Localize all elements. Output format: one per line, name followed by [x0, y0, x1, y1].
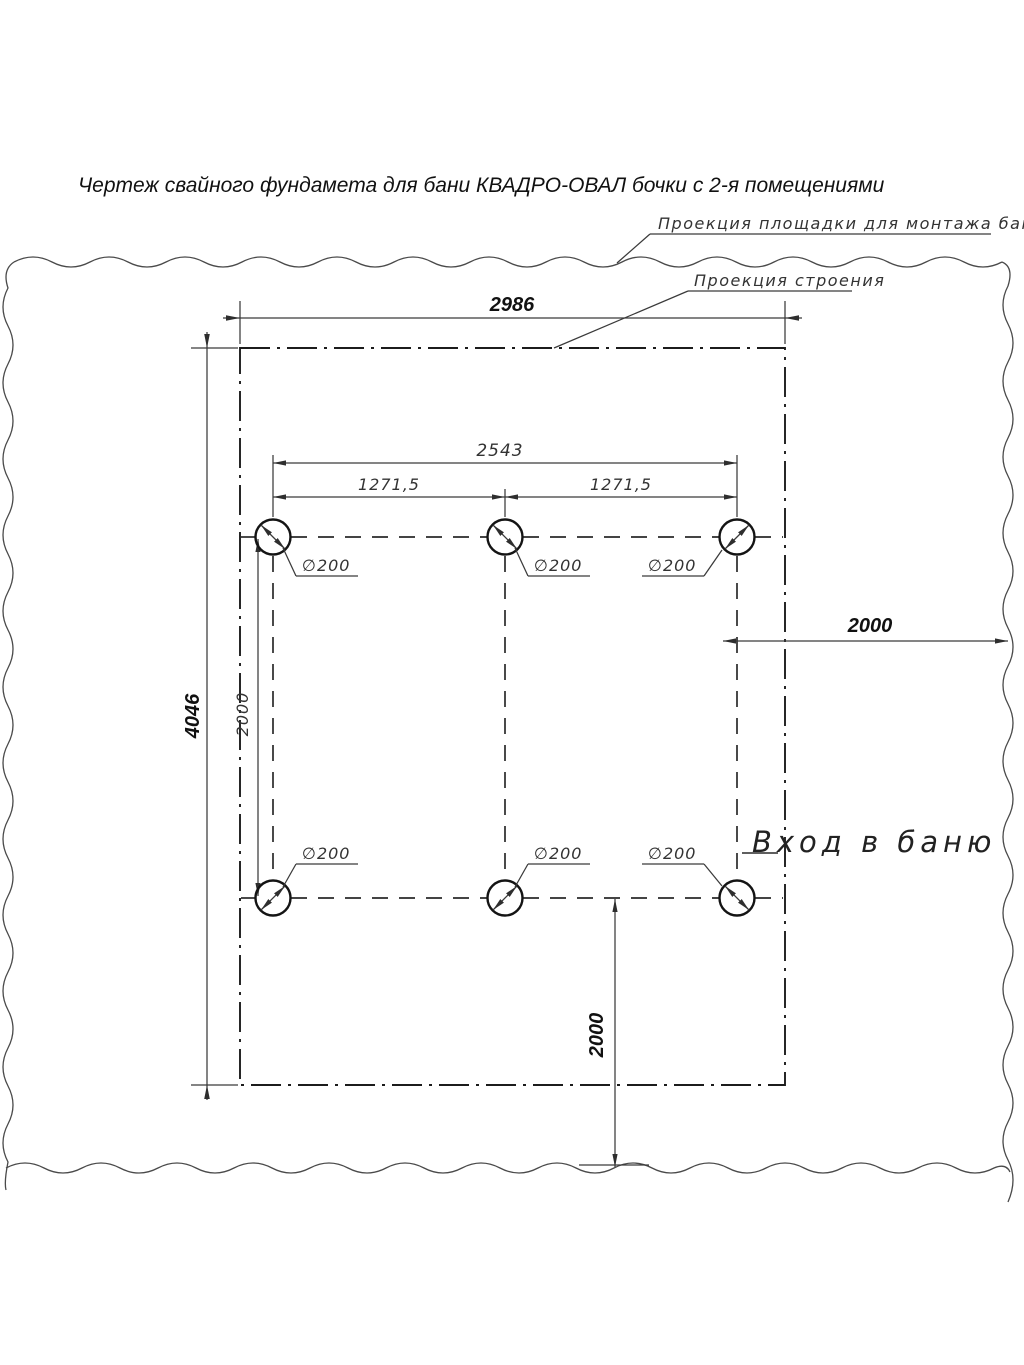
pile-diameter-arrow — [261, 886, 285, 910]
callout-platform-leader — [617, 234, 650, 263]
dim-platform-width: 2986 — [223, 294, 802, 344]
dim-pile-spans: 2543 1271,5 1271,5 — [273, 441, 737, 517]
platform-border — [3, 257, 1013, 1202]
callout-platform: Проекция площадки для монтажа бани — [617, 214, 1024, 263]
pile-diameter-label: ∅200 — [534, 556, 582, 575]
pile-diameter-label: ∅200 — [648, 844, 696, 863]
platform-border-right — [1002, 262, 1013, 1202]
entrance-label: Вход в баню — [752, 825, 996, 859]
label-leader — [704, 550, 722, 576]
platform-border-left — [3, 262, 14, 1190]
entrance: Вход в баню — [742, 825, 996, 859]
drawing-page: Чертеж свайного фундамета для бани КВАДР… — [0, 0, 1024, 1365]
callout-building: Проекция строения — [554, 271, 885, 348]
dim-arrow — [204, 334, 210, 348]
dim-arrow — [226, 315, 240, 321]
dim-platform-height: 4046 — [182, 332, 238, 1100]
dim-pile-span-left-value: 1271,5 — [358, 475, 420, 494]
pile-diameter-label: ∅200 — [302, 556, 350, 575]
dim-bottom-offset-value: 2000 — [586, 1013, 608, 1059]
pile-diameter-arrow — [493, 886, 517, 910]
label-leader — [515, 864, 528, 887]
pile-diameter-arrow — [725, 525, 749, 549]
dim-arrow — [785, 315, 799, 321]
platform-border-bottom — [6, 1163, 1010, 1173]
callout-building-label: Проекция строения — [694, 271, 885, 290]
dim-pile-span-right-value: 1271,5 — [590, 475, 652, 494]
pile-diameter-label: ∅200 — [534, 844, 582, 863]
label-leader — [515, 548, 528, 576]
callout-platform-label: Проекция площадки для монтажа бани — [658, 214, 1024, 233]
dim-pile-row-spacing-value: 2000 — [233, 692, 252, 737]
pile-diameter-arrow — [493, 525, 517, 549]
dim-bottom-offset: 2000 — [579, 899, 649, 1167]
drawing-title: Чертеж свайного фундамета для бани КВАДР… — [78, 174, 885, 197]
pile-diameter-labels-top: ∅200 ∅200 ∅200 — [283, 548, 722, 576]
dim-arrow — [204, 1085, 210, 1099]
platform-border-top — [14, 257, 1002, 267]
pile-diameter-arrow — [725, 886, 749, 910]
dim-entrance-offset: 2000 — [723, 615, 1008, 641]
pile-diameter-arrow — [261, 525, 285, 549]
label-leader — [283, 548, 296, 576]
label-leader — [283, 864, 296, 887]
dim-pile-row-spacing: 2000 — [233, 539, 258, 896]
label-leader — [704, 864, 722, 886]
foundation-drawing-canvas: Чертеж свайного фундамета для бани КВАДР… — [0, 0, 1024, 1365]
dim-pile-span-total-value: 2543 — [476, 441, 523, 461]
pile-diameter-label: ∅200 — [302, 844, 350, 863]
callout-building-leader — [554, 291, 688, 348]
dim-platform-width-value: 2986 — [489, 294, 535, 316]
dim-entrance-offset-value: 2000 — [847, 615, 893, 637]
pile-diameter-label: ∅200 — [648, 556, 696, 575]
dim-platform-height-value: 4046 — [182, 693, 204, 739]
